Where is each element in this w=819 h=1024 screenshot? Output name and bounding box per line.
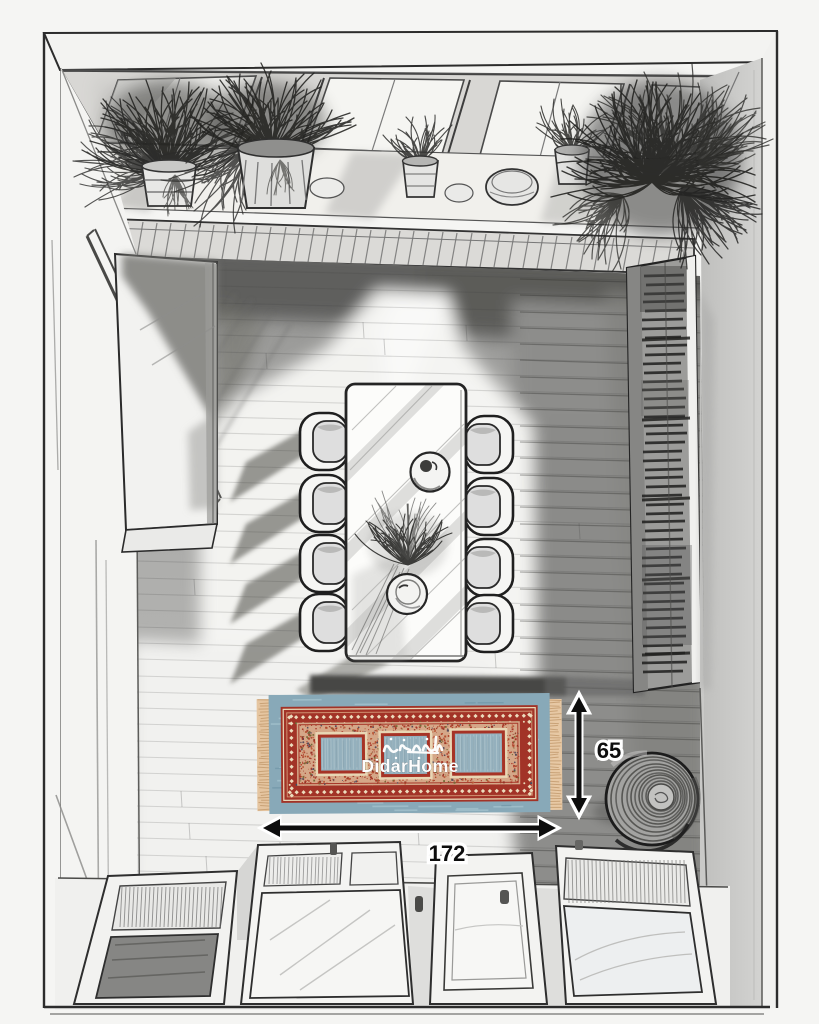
svg-text:172: 172 bbox=[429, 841, 466, 866]
svg-text:65: 65 bbox=[597, 738, 621, 763]
svg-text:DidarHome: DidarHome bbox=[361, 756, 459, 776]
